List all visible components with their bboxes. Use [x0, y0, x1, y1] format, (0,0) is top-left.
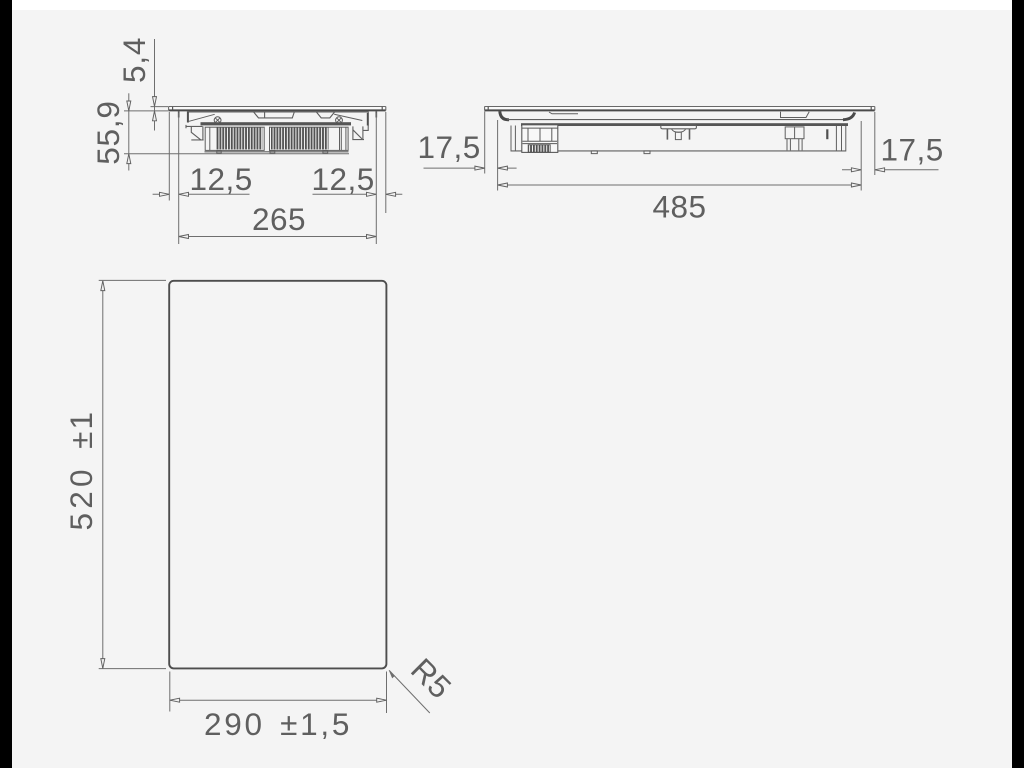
svg-text:485: 485	[653, 189, 707, 225]
svg-text:17,5: 17,5	[418, 129, 481, 165]
svg-text:5,4: 5,4	[116, 37, 152, 83]
svg-text:55,9: 55,9	[90, 100, 126, 165]
svg-text:520±1: 520±1	[63, 410, 99, 530]
svg-text:17,5: 17,5	[881, 132, 944, 168]
svg-text:290±1,5: 290±1,5	[204, 706, 352, 742]
svg-text:265: 265	[252, 201, 306, 237]
svg-text:12,5: 12,5	[190, 161, 253, 197]
svg-text:12,5: 12,5	[312, 161, 375, 197]
svg-text:R5: R5	[404, 651, 459, 706]
